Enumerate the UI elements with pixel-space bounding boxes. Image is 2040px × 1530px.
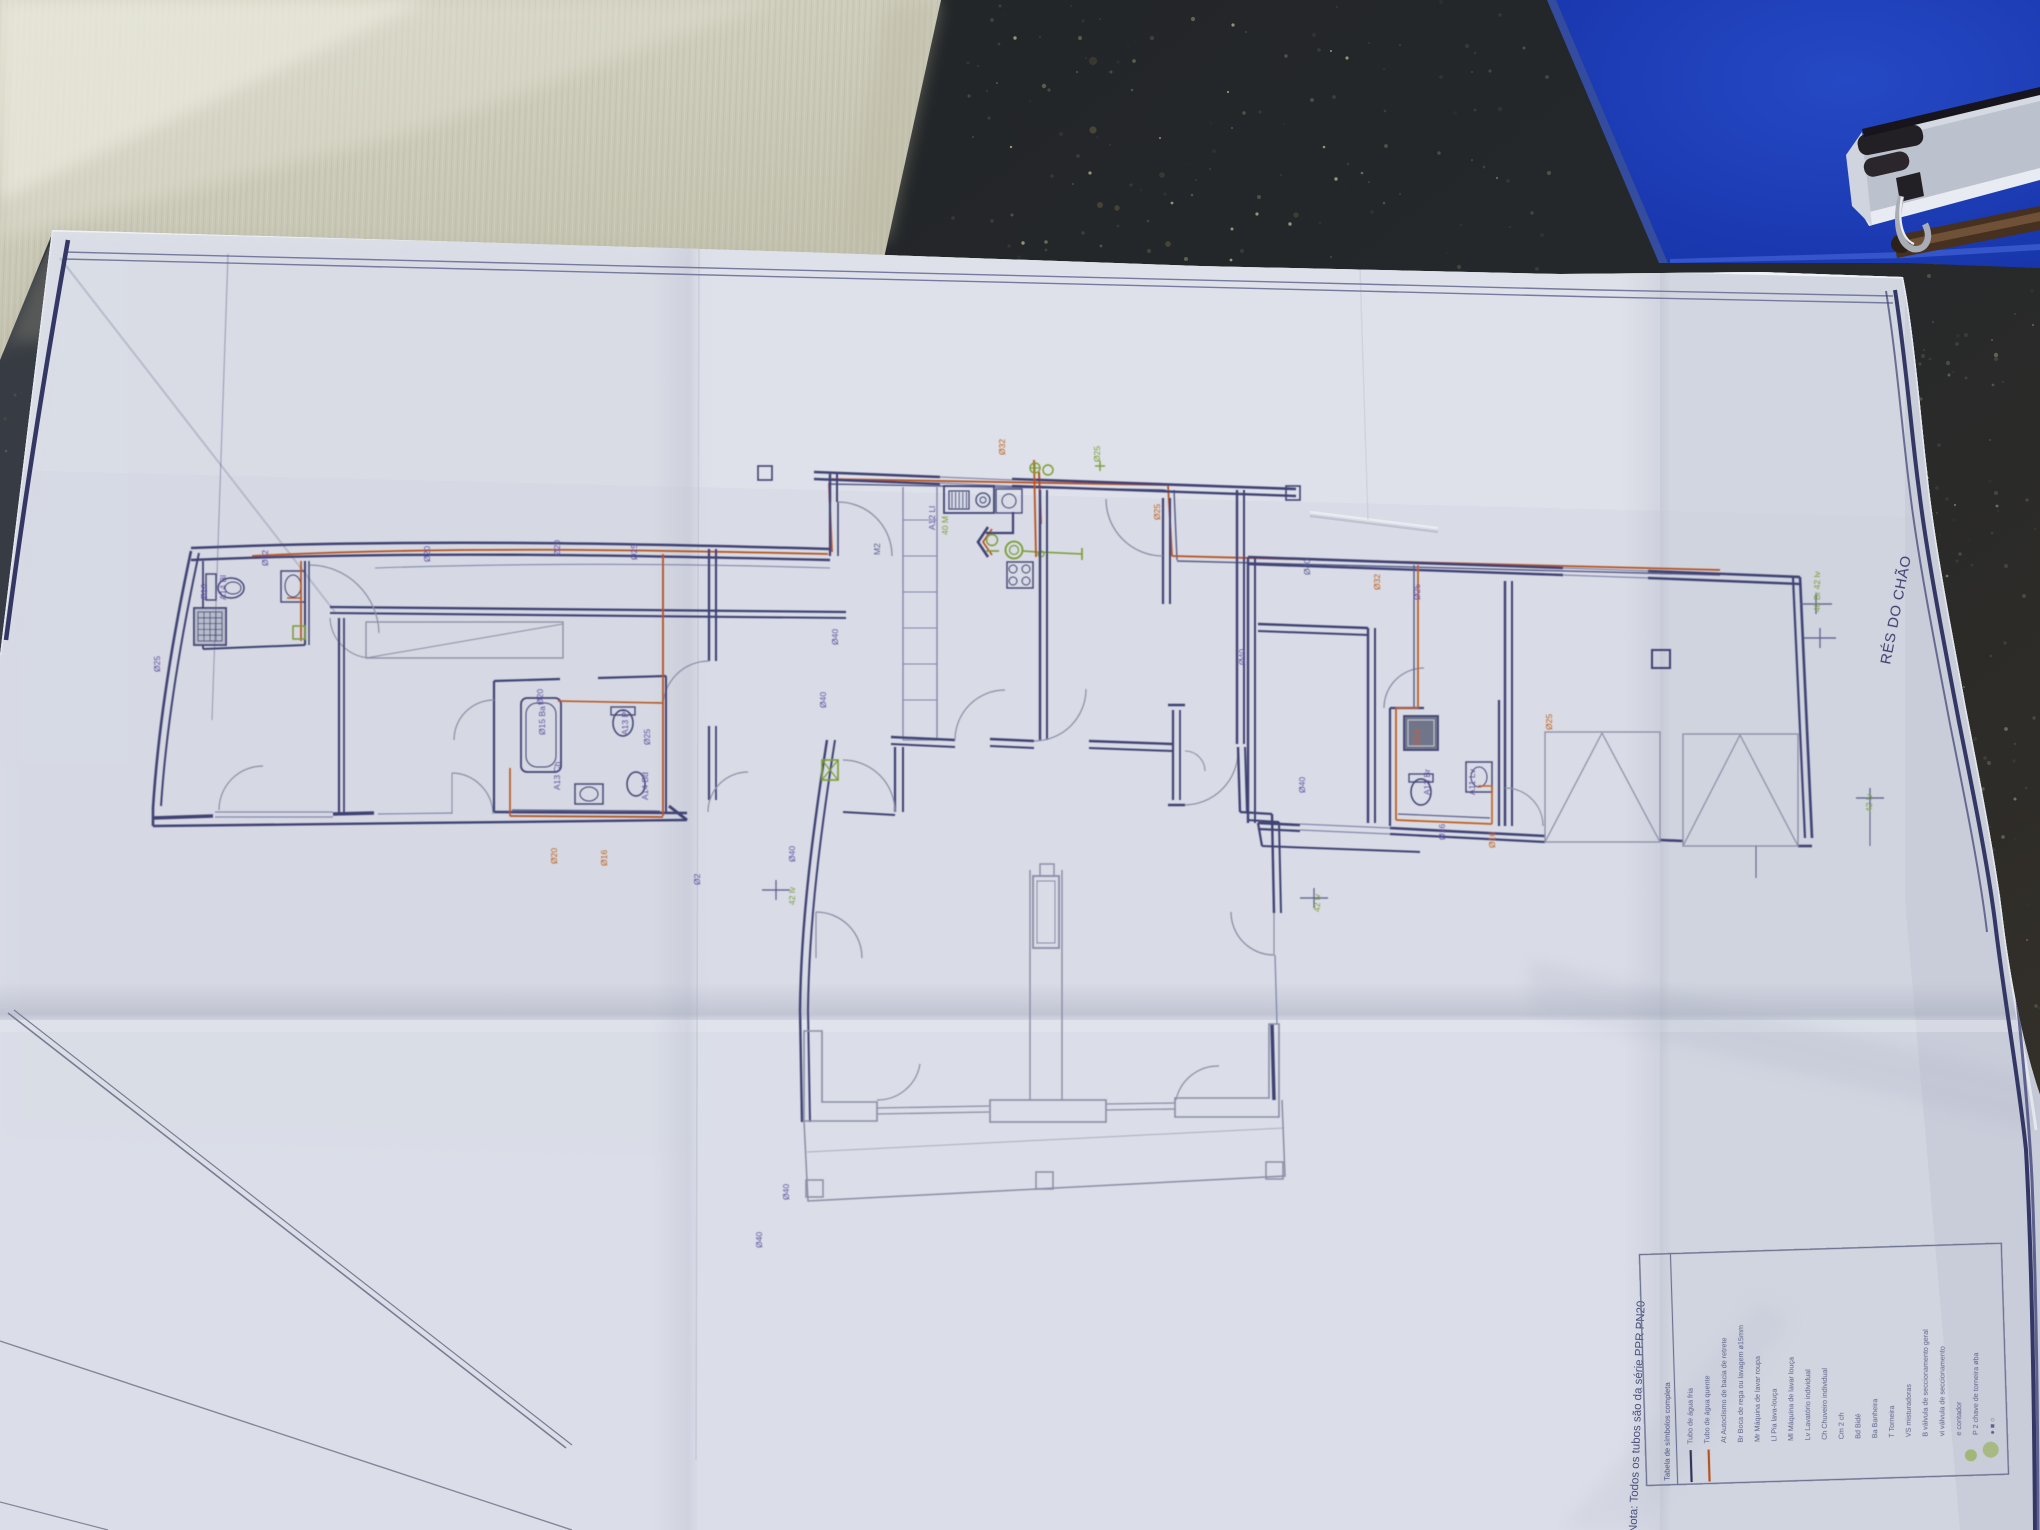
svg-text:B válvula de seccionamento ge: B válvula de seccionamento geral [1921, 1329, 1930, 1437]
svg-text:Ø40: Ø40 [1237, 649, 1247, 665]
svg-text:Ø40: Ø40 [1302, 559, 1312, 575]
svg-text:M2: M2 [872, 543, 882, 555]
svg-text:Ø25: Ø25 [1152, 504, 1162, 520]
svg-text:Ø32: Ø32 [1372, 574, 1382, 590]
svg-text:Ø40: Ø40 [818, 692, 828, 708]
svg-text:Ø16: Ø16 [1412, 729, 1422, 745]
svg-text:Tabela de símbolos completa: Tabela de símbolos completa [1663, 1382, 1672, 1481]
svg-text:Ø25: Ø25 [1412, 584, 1422, 600]
svg-text:Ml Máquina de lavar louça: Ml Máquina de lavar louça [1786, 1357, 1795, 1441]
svg-text:A12 Ll: A12 Ll [927, 506, 937, 530]
svg-text:Ba Banheira: Ba Banheira [1870, 1399, 1879, 1439]
svg-text:A13 Br: A13 Br [1422, 769, 1432, 795]
svg-text:42 lv: 42 lv [787, 886, 797, 905]
svg-text:Ø20: Ø20 [422, 546, 432, 562]
svg-text:Tubo de água fria: Tubo de água fria [1685, 1388, 1694, 1444]
svg-text:Ø25: Ø25 [1544, 714, 1554, 730]
svg-text:Ø15 Ba: Ø15 Ba [537, 706, 547, 735]
svg-text:Ø25: Ø25 [152, 656, 162, 672]
svg-text:Ø16: Ø16 [599, 850, 609, 866]
svg-text:e contador: e contador [1954, 1401, 1963, 1436]
svg-text:Lv Lavatório individual: Lv Lavatório individual [1803, 1369, 1812, 1441]
svg-text:Ch Chuveiro individual: Ch Chuveiro individual [1820, 1367, 1829, 1439]
svg-text:Tubo de água quente: Tubo de água quente [1702, 1375, 1711, 1443]
svg-text:A14 Bd: A14 Bd [640, 772, 650, 800]
svg-text:Ø2: Ø2 [692, 873, 702, 885]
svg-text:Ø40: Ø40 [781, 1184, 791, 1200]
svg-text:Ø16: Ø16 [199, 584, 209, 600]
svg-text:● ■ ○: ● ■ ○ [1988, 1417, 1997, 1434]
svg-text:A13 Pl: A13 Pl [620, 710, 630, 735]
svg-text:A11 Lv: A11 Lv [1467, 768, 1477, 795]
svg-text:Ø25: Ø25 [642, 729, 652, 745]
svg-text:Ø25: Ø25 [629, 544, 639, 560]
svg-text:Ø32: Ø32 [260, 550, 270, 566]
svg-text:Ø20: Ø20 [552, 540, 562, 556]
svg-text:A14 Bl: A14 Bl [218, 575, 228, 600]
svg-text:Ø40: Ø40 [830, 629, 840, 645]
svg-text:Ø16: Ø16 [1437, 824, 1447, 840]
svg-text:At Autoclismo de bacia de ret: At Autoclismo de bacia de retrete [1719, 1337, 1728, 1443]
svg-text:Ø16: Ø16 [1487, 832, 1497, 848]
svg-text:48 Br 42 lv: 48 Br 42 lv [1812, 571, 1822, 612]
svg-text:42 lv: 42 lv [1312, 893, 1322, 912]
svg-text:Ø25: Ø25 [1092, 446, 1102, 462]
svg-text:Mr Máquina de lavar roupa: Mr Máquina de lavar roupa [1753, 1356, 1762, 1442]
svg-text:vi válvula de seccionamento: vi válvula de seccionamento [1937, 1346, 1946, 1436]
svg-text:Ø40: Ø40 [787, 846, 797, 862]
svg-text:Cm 2 ch: Cm 2 ch [1837, 1413, 1846, 1440]
svg-text:VS misturadoras: VS misturadoras [1904, 1384, 1913, 1438]
svg-text:Ll Pia lava-louça: Ll Pia lava-louça [1769, 1389, 1778, 1442]
svg-text:Ø32: Ø32 [997, 439, 1007, 455]
svg-text:P 2 chave de torneira øba: P 2 chave de torneira øba [1971, 1352, 1980, 1435]
svg-text:Br Boca de rega ou lavagem ø1: Br Boca de rega ou lavagem ø15mm [1736, 1325, 1745, 1442]
svg-text:A13 Ch: A13 Ch [552, 761, 562, 790]
svg-text:40 M: 40 M [940, 516, 950, 535]
svg-text:42 lv: 42 lv [1864, 793, 1874, 812]
svg-text:Ø20: Ø20 [535, 689, 545, 705]
svg-text:Ø40: Ø40 [754, 1232, 764, 1248]
svg-text:T Torneira: T Torneira [1887, 1406, 1896, 1438]
svg-text:Ø20: Ø20 [549, 848, 559, 864]
svg-text:Ø40: Ø40 [1297, 777, 1307, 793]
svg-text:Bd Bidé: Bd Bidé [1853, 1414, 1862, 1439]
